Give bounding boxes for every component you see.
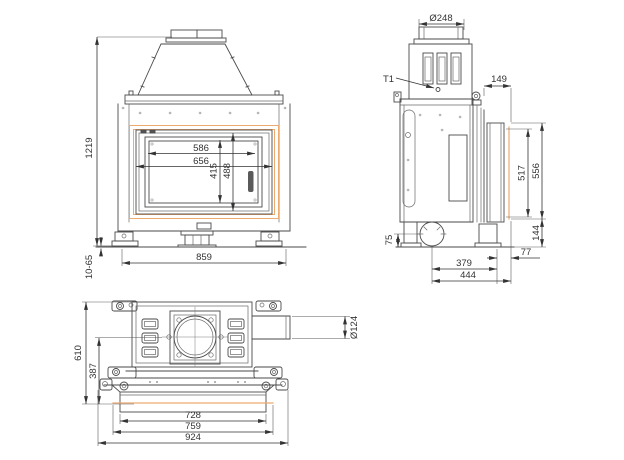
dim-flue-diameter: Ø248 bbox=[429, 13, 452, 24]
flue-collar-side bbox=[419, 27, 463, 39]
dim-glass-height: 415 bbox=[209, 163, 220, 179]
dim-frame-width: 759 bbox=[185, 421, 201, 432]
door-handle bbox=[248, 171, 254, 192]
thermo-hole bbox=[436, 88, 440, 92]
lifting-eyelet bbox=[472, 92, 480, 100]
back-leg-side bbox=[404, 222, 417, 243]
dim-overall-width: 924 bbox=[185, 432, 201, 443]
dim-inlet-to-front: 379 bbox=[456, 258, 472, 269]
dim-door-height: 488 bbox=[222, 163, 233, 179]
front-foot-side bbox=[479, 224, 497, 243]
right-leg bbox=[261, 232, 279, 241]
thermo-leader bbox=[396, 78, 434, 88]
dim-foot-adjust: 10-65 bbox=[84, 255, 95, 279]
bottom-slots bbox=[142, 319, 244, 357]
front-view bbox=[96, 30, 306, 247]
back-shield bbox=[403, 110, 415, 207]
door-side bbox=[487, 123, 504, 222]
screw-marks bbox=[122, 107, 286, 114]
flue-collar-front bbox=[171, 30, 222, 38]
drawing-canvas: 1219 586 656 415 488 859 10-65 bbox=[0, 0, 624, 460]
dim-floor-clearance: 144 bbox=[531, 225, 542, 241]
dim-door-width: 656 bbox=[193, 156, 209, 167]
dim-base-width: 859 bbox=[196, 252, 212, 263]
dim-frame-overhang: 77 bbox=[521, 247, 532, 258]
dim-inlet-diameter: Ø124 bbox=[349, 316, 360, 339]
dim-overall-height: 1219 bbox=[84, 137, 95, 158]
air-inlet-connector bbox=[252, 316, 290, 339]
dim-overall-depth-front: 444 bbox=[460, 270, 476, 281]
center-support bbox=[185, 235, 209, 245]
side-view bbox=[394, 27, 514, 247]
technical-drawing: 1219 586 656 415 488 859 10-65 bbox=[0, 0, 624, 460]
dim-door-front-height: 517 bbox=[517, 165, 528, 181]
dim-panel-width: 728 bbox=[185, 410, 201, 421]
dim-frame-front-height: 556 bbox=[531, 163, 542, 179]
dim-inlet-center-height: 75 bbox=[384, 235, 395, 246]
bottom-view bbox=[100, 301, 290, 412]
thermo-label: T1 bbox=[383, 74, 394, 85]
side-panel-opening bbox=[449, 135, 467, 201]
dim-flue-center-to-front: 387 bbox=[88, 363, 99, 379]
bottom-view-dimensions: 610 387 Ø124 728 759 924 bbox=[73, 302, 360, 446]
dim-glass-width: 586 bbox=[193, 143, 209, 154]
vent-slots-side bbox=[423, 53, 461, 84]
upper-box-side bbox=[409, 44, 472, 99]
top-plate-front bbox=[125, 95, 283, 104]
mid-lugs bbox=[100, 367, 288, 390]
dim-top-depth: 149 bbox=[491, 74, 507, 85]
step-marks bbox=[149, 381, 246, 383]
air-inlet-side bbox=[420, 222, 444, 246]
left-leg bbox=[115, 232, 133, 241]
dim-overall-depth: 610 bbox=[73, 345, 84, 361]
optional-frame-outline bbox=[130, 126, 279, 219]
hood-front bbox=[138, 44, 252, 95]
